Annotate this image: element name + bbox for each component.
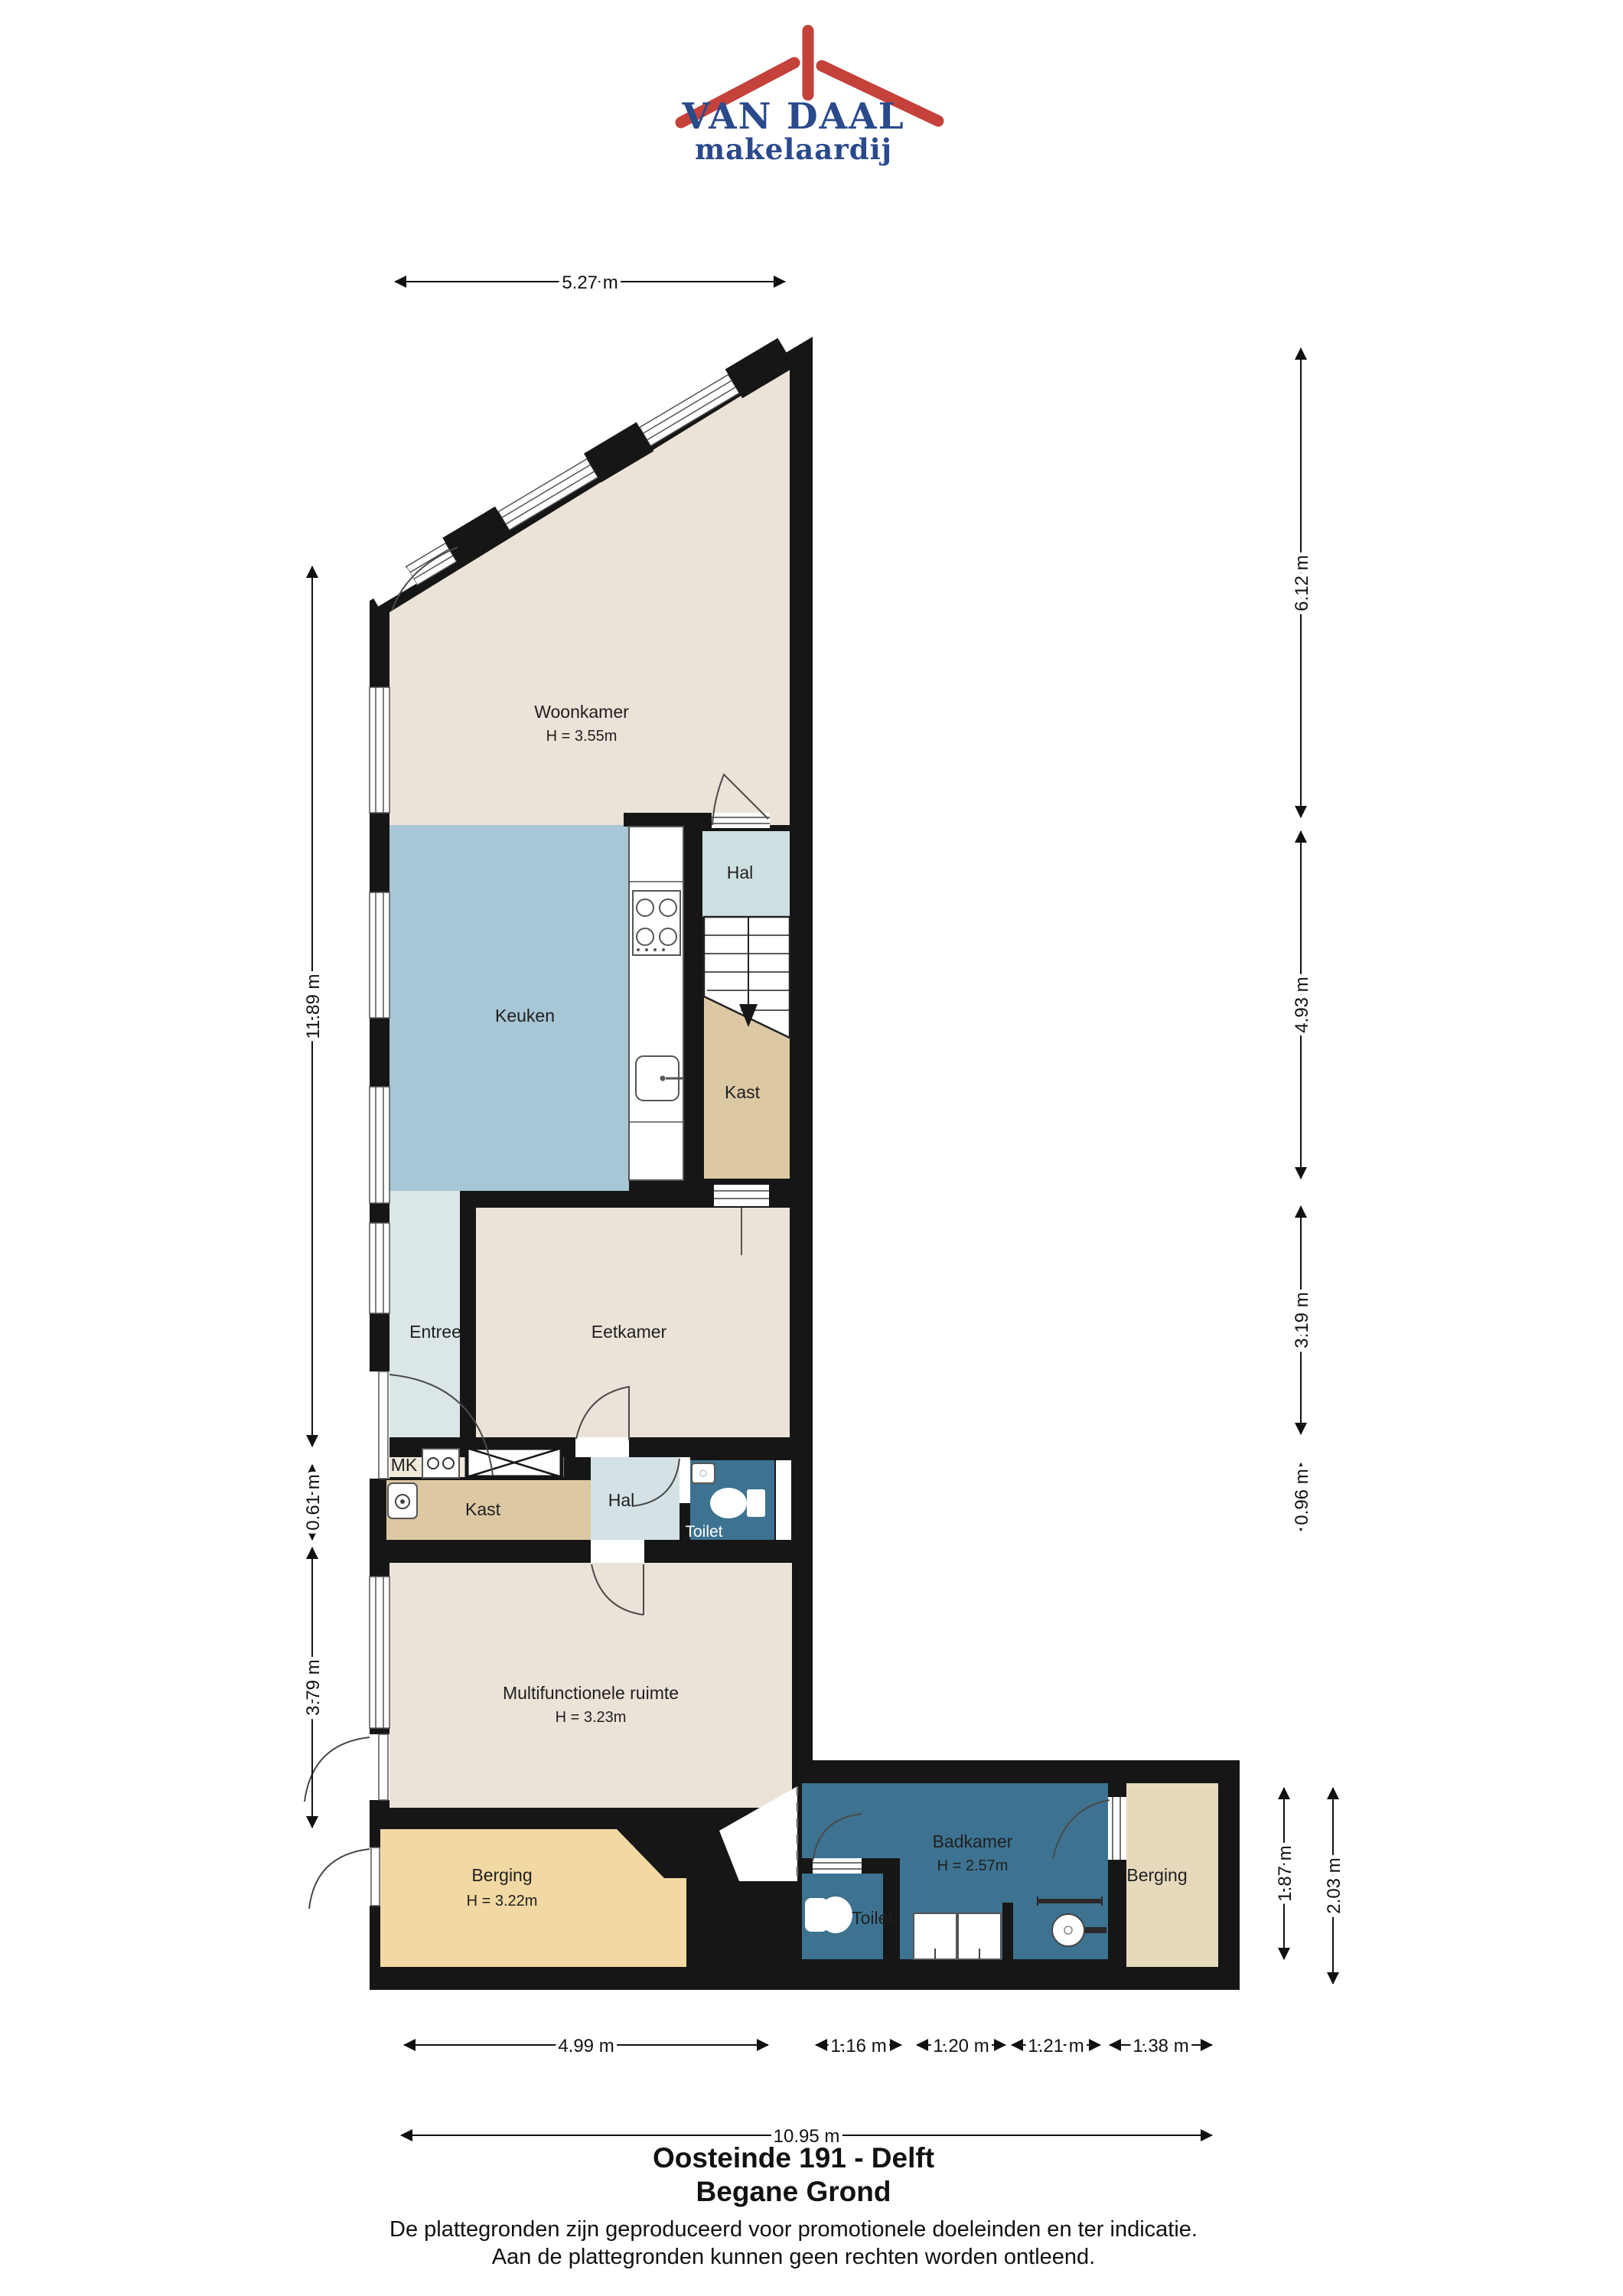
dim-right-1: 4.93 m	[1292, 977, 1312, 1032]
label-keuken: Keuken	[495, 1006, 555, 1026]
label-berging-rechts: Berging	[1126, 1865, 1187, 1885]
window	[370, 892, 389, 1018]
page-subtitle: Begane Grond	[696, 2176, 891, 2207]
dim-left-0: 11.89 m	[303, 974, 324, 1039]
stove-icon	[633, 891, 680, 955]
window	[370, 1223, 389, 1313]
dim-bottom-0: 4.99 m	[558, 2036, 614, 2056]
room-woonkamer	[389, 366, 790, 825]
room-entree	[389, 1191, 460, 1437]
label-toilet-achter: Toilet	[852, 1908, 893, 1928]
shower-units	[914, 1913, 1001, 1959]
label-berging-links-height: H = 3.22m	[467, 1893, 538, 1910]
label-entree: Entree	[409, 1322, 461, 1342]
floorplan-page: VAN DAAL makelaardij	[0, 0, 1623, 2296]
label-mk: MK	[391, 1455, 418, 1475]
vandaal-logo: VAN DAAL makelaardij	[681, 31, 938, 166]
floorplan-canvas: VAN DAAL makelaardij	[0, 0, 1623, 2296]
window	[370, 687, 389, 813]
wardrobe-icon	[467, 1448, 562, 1477]
dim-bottom-3: 1.21 m	[1028, 2036, 1084, 2056]
label-toilet-midden: Toilet	[685, 1523, 722, 1541]
title-block: Oosteinde 191 - Delft Begane Grond De pl…	[389, 2142, 1198, 2269]
label-badkamer: Badkamer	[933, 1831, 1013, 1851]
label-kast-midden: Kast	[465, 1499, 501, 1519]
dim-rear-1: 2.03 m	[1324, 1857, 1344, 1913]
boiler-icon	[422, 1449, 459, 1478]
dim-right-2: 3.19 m	[1292, 1292, 1312, 1348]
label-multifunctionele-height: H = 3.23m	[556, 1709, 627, 1726]
toilet-achter-fixture	[805, 1896, 852, 1933]
window	[370, 1577, 389, 1728]
label-hal-boven: Hal	[727, 863, 754, 882]
label-woonkamer-height: H = 3.55m	[546, 728, 618, 745]
floorplan: Woonkamer H = 3.55m Keuken Hal Kast Entr…	[305, 337, 1240, 1990]
label-badkamer-height: H = 2.57m	[937, 1857, 1009, 1874]
dim-left-2: 3.79 m	[303, 1659, 324, 1715]
logo-subtitle: makelaardij	[695, 132, 892, 166]
label-kast-boven: Kast	[725, 1082, 761, 1102]
dim-left-1: 0.61 m	[303, 1474, 324, 1530]
dim-bottom-1: 1.16 m	[830, 2036, 886, 2056]
dim-rear-0: 1.87 m	[1275, 1845, 1295, 1901]
dim-right-3: 0.96 m	[1292, 1469, 1312, 1525]
window	[370, 1087, 389, 1203]
washer-icon	[388, 1483, 417, 1518]
logo-name: VAN DAAL	[681, 96, 904, 138]
page-title: Oosteinde 191 - Delft	[653, 2142, 934, 2174]
disclaimer-line-2: Aan de plattegronden kunnen geen rechten…	[492, 2245, 1095, 2269]
label-hal-midden: Hal	[608, 1490, 635, 1510]
kitchen-sink-icon	[636, 1056, 683, 1101]
label-eetkamer: Eetkamer	[592, 1322, 667, 1342]
dim-right-0: 6.12 m	[1292, 555, 1312, 611]
dim-bottom-2: 1.20 m	[933, 2036, 989, 2056]
duct-shaft	[776, 1460, 791, 1540]
dim-top: 5.27 m	[562, 272, 618, 293]
door-berging-exterior	[309, 1848, 380, 1909]
label-multifunctionele: Multifunctionele ruimte	[503, 1683, 679, 1703]
kitchen-counter	[629, 827, 683, 1180]
dim-bottom-4: 1.38 m	[1133, 2036, 1188, 2056]
door-multifunctionele-exterior	[305, 1734, 389, 1802]
label-berging-links: Berging	[471, 1865, 532, 1885]
disclaimer-line-1: De plattegronden zijn geproduceerd voor …	[389, 2217, 1198, 2242]
label-woonkamer: Woonkamer	[534, 702, 629, 722]
